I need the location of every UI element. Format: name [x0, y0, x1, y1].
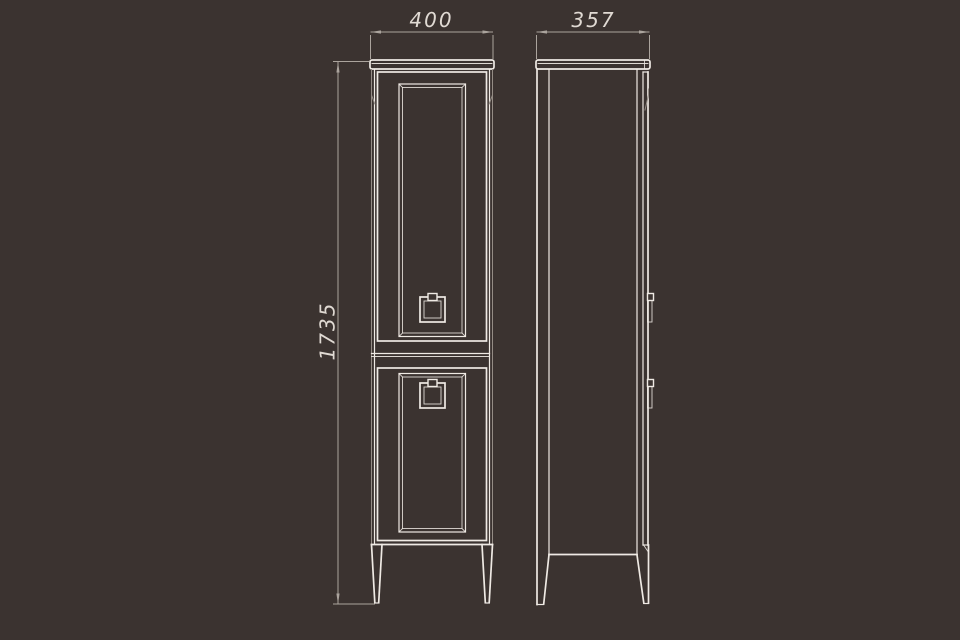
- leg-outer-edge: [489, 545, 492, 603]
- lower-door-handle: [420, 380, 445, 409]
- arrowhead-right: [639, 30, 650, 33]
- arrowhead-top: [336, 62, 339, 73]
- upper-handle-tab: [428, 294, 437, 301]
- front-lower-door: [378, 368, 487, 541]
- handle-profile-tab: [648, 294, 654, 301]
- arrowhead-left: [371, 30, 382, 33]
- side-front-leg: [637, 545, 649, 604]
- dimension-depth: 357: [537, 8, 650, 59]
- upper-door-handle: [420, 294, 445, 323]
- side-door-bottom-chamfer: [644, 545, 649, 552]
- lower-door-bevel-outer: [399, 374, 466, 533]
- cabinet-technical-drawing: 400 357 1735: [0, 0, 960, 640]
- lower-handle-inner: [424, 387, 441, 404]
- leg-inner-edge: [379, 545, 382, 603]
- handle-profile-tab: [648, 380, 654, 387]
- front-left-leg: [372, 545, 383, 604]
- front-upper-door: [378, 72, 487, 341]
- dimension-height: 1735: [316, 62, 376, 605]
- leg-inner-edge: [637, 555, 644, 603]
- arrowhead-left: [537, 30, 548, 33]
- drawing-canvas: 400 357 1735: [0, 0, 960, 640]
- depth-dimension-label: 357: [571, 8, 615, 32]
- arrowhead-bottom: [336, 594, 339, 605]
- side-top-board: [536, 60, 650, 69]
- upper-handle-inner: [424, 301, 441, 318]
- height-dimension-label: 1735: [316, 302, 340, 361]
- lower-door-outline: [378, 368, 487, 541]
- arrowhead-right: [483, 30, 494, 33]
- front-right-leg: [482, 545, 493, 604]
- leg-inner-edge: [482, 545, 485, 603]
- front-view: [370, 60, 494, 603]
- side-back-leg: [537, 555, 549, 605]
- leg-outer-edge: [372, 545, 375, 603]
- leg-inner-edge: [544, 555, 549, 605]
- dimension-width: 400: [371, 8, 494, 59]
- front-top-board: [370, 60, 494, 69]
- lower-door-bevel-inner: [403, 377, 463, 529]
- width-dimension-label: 400: [409, 8, 453, 32]
- side-view: [536, 60, 654, 605]
- lower-handle-tab: [428, 380, 437, 387]
